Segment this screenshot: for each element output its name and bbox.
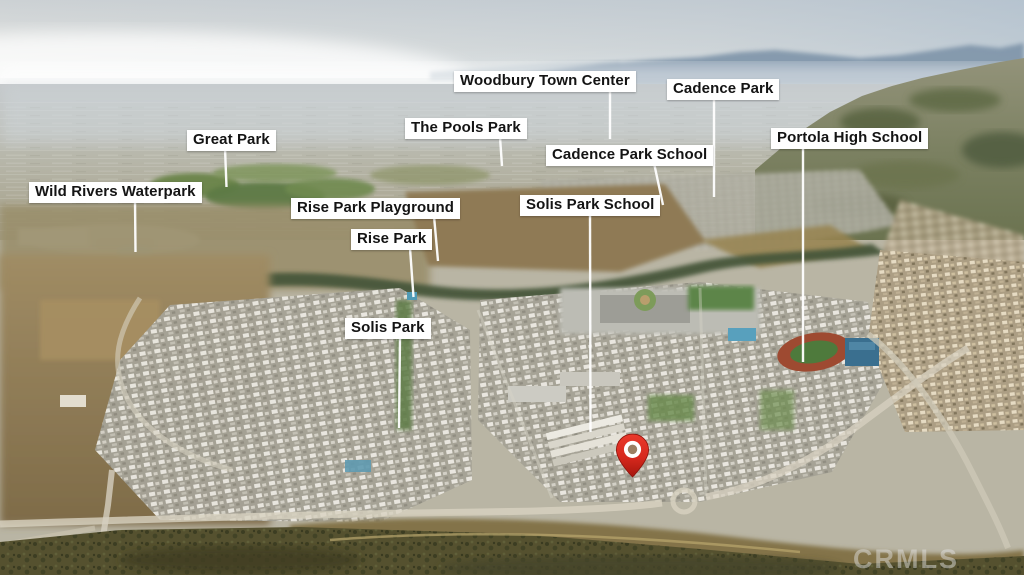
label-rise-park-playground: Rise Park Playground <box>291 198 460 219</box>
label-solis-park: Solis Park <box>345 318 431 339</box>
crmls-watermark: CRMLS <box>853 544 959 575</box>
aerial-listing-photo: Wild Rivers Waterpark Great Park The Poo… <box>0 0 1024 575</box>
label-the-pools-park: The Pools Park <box>405 118 527 139</box>
label-portola-high-school: Portola High School <box>771 128 928 149</box>
label-rise-park: Rise Park <box>351 229 432 250</box>
label-woodbury-town-center: Woodbury Town Center <box>454 71 636 92</box>
location-pin-icon <box>615 433 650 478</box>
label-great-park: Great Park <box>187 130 276 151</box>
label-cadence-park: Cadence Park <box>667 79 779 100</box>
label-wild-rivers-waterpark: Wild Rivers Waterpark <box>29 182 202 203</box>
label-solis-park-school: Solis Park School <box>520 195 660 216</box>
label-cadence-park-school: Cadence Park School <box>546 145 713 166</box>
